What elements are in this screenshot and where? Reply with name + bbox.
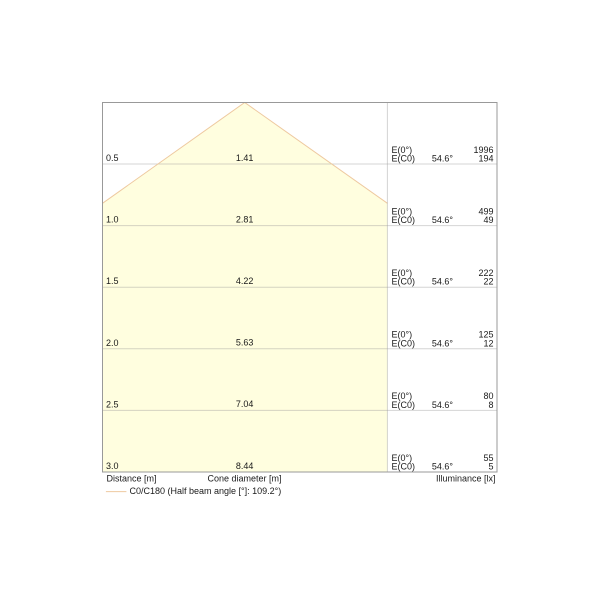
svg-text:Distance [m]: Distance [m] [107,473,157,483]
svg-text:8: 8 [488,400,493,410]
svg-text:54.6°: 54.6° [432,215,454,225]
svg-text:54.6°: 54.6° [432,154,454,164]
svg-text:7.04: 7.04 [236,399,254,409]
svg-text:E(C0): E(C0) [392,462,416,472]
svg-text:194: 194 [478,154,493,164]
svg-text:54.6°: 54.6° [432,400,454,410]
svg-text:E(C0): E(C0) [392,154,416,164]
svg-text:Illuminance [lx]: Illuminance [lx] [436,473,496,483]
svg-text:54.6°: 54.6° [432,338,454,348]
svg-text:8.44: 8.44 [236,461,254,471]
svg-text:Cone diameter [m]: Cone diameter [m] [207,473,281,483]
svg-text:C0/C180 (Half beam angle [°]:: C0/C180 (Half beam angle [°]: 109.2°) [130,486,282,496]
svg-text:2.0: 2.0 [106,338,119,348]
svg-text:E(C0): E(C0) [392,400,416,410]
svg-text:2.81: 2.81 [236,214,254,224]
svg-text:5.63: 5.63 [236,338,254,348]
svg-text:5: 5 [488,462,493,472]
svg-text:22: 22 [483,277,493,287]
svg-text:E(C0): E(C0) [392,338,416,348]
svg-text:1.41: 1.41 [236,153,254,163]
svg-text:1.0: 1.0 [106,215,119,225]
svg-text:E(C0): E(C0) [392,215,416,225]
svg-text:2.5: 2.5 [106,399,119,409]
svg-text:49: 49 [483,215,493,225]
svg-text:1.5: 1.5 [106,276,119,286]
svg-text:E(C0): E(C0) [392,277,416,287]
svg-text:54.6°: 54.6° [432,277,454,287]
svg-text:12: 12 [483,338,493,348]
svg-text:3.0: 3.0 [106,461,119,471]
svg-text:4.22: 4.22 [236,276,254,286]
svg-text:0.5: 0.5 [106,153,119,163]
svg-text:54.6°: 54.6° [432,462,454,472]
